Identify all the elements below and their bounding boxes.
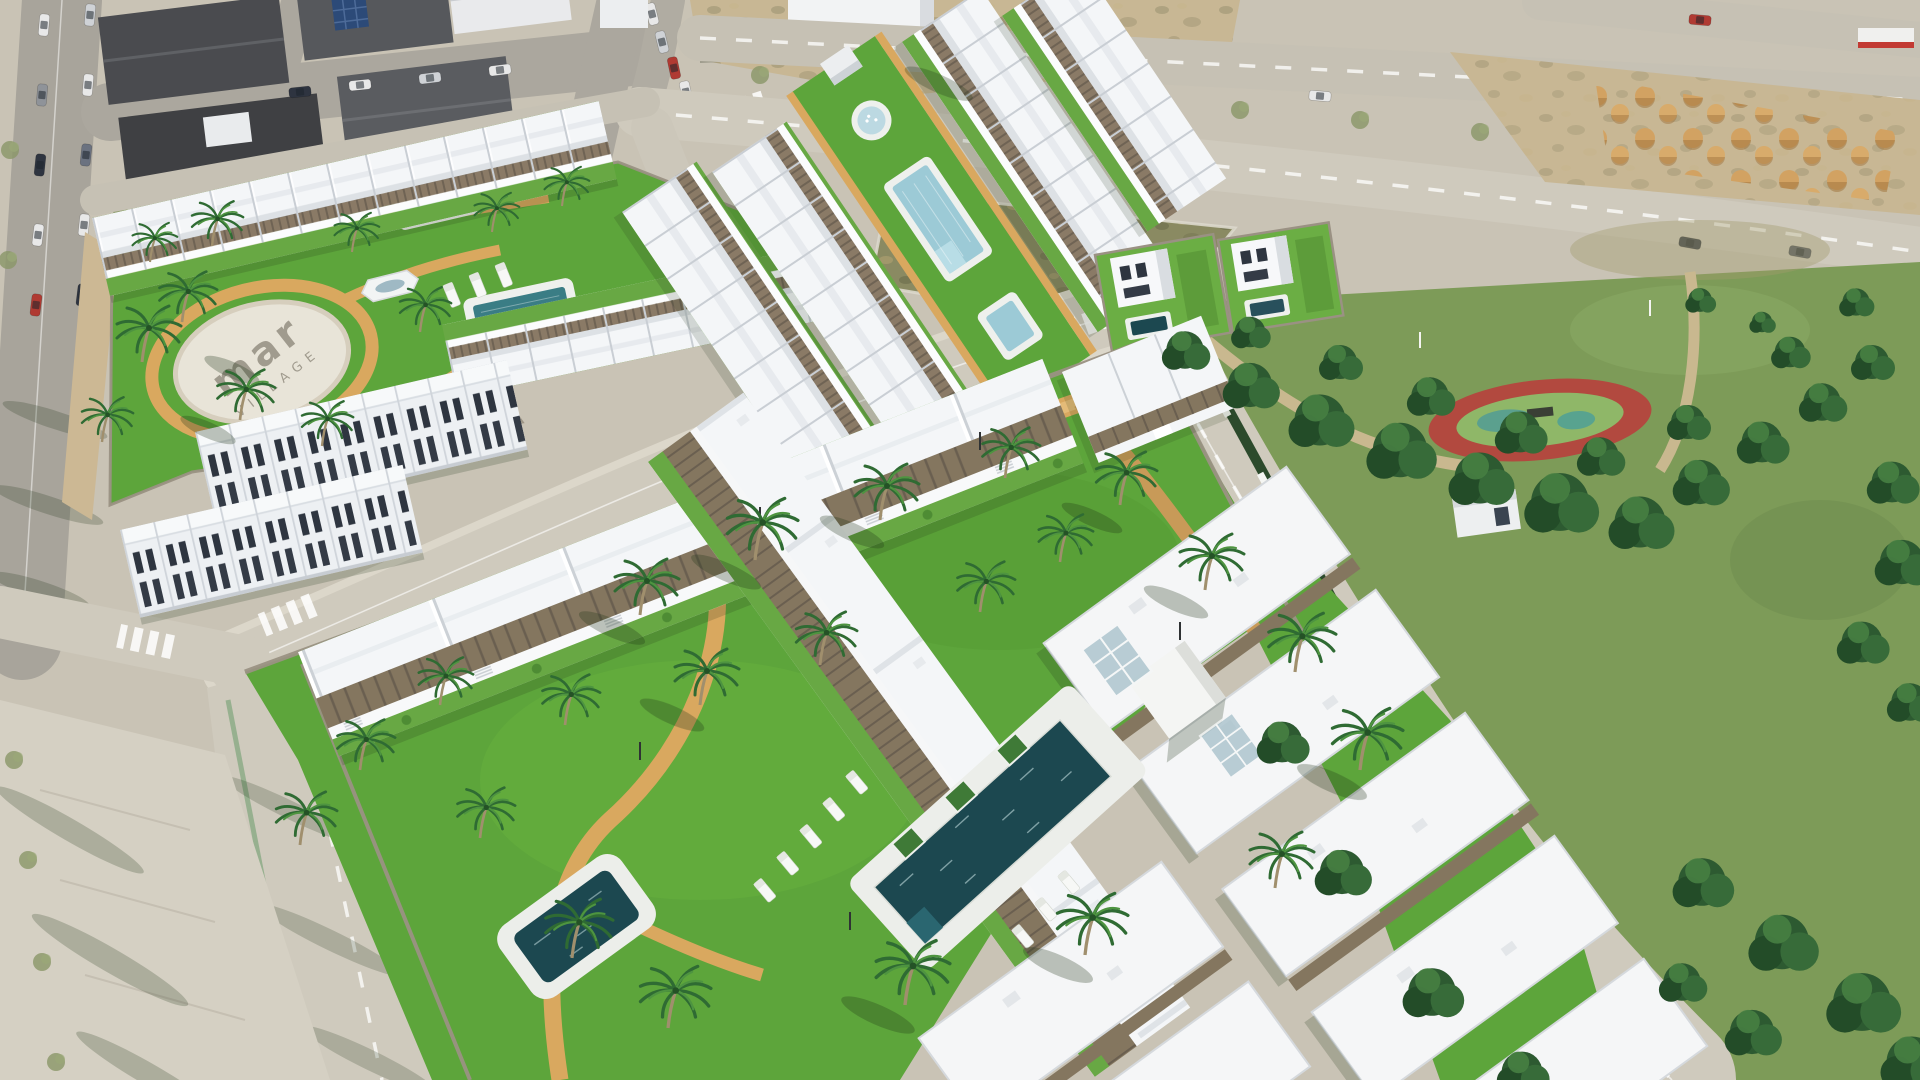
bare-tree bbox=[33, 953, 51, 971]
bare-tree bbox=[19, 851, 37, 869]
town-building bbox=[600, 0, 648, 28]
parked-car bbox=[289, 86, 312, 98]
red-car bbox=[1689, 14, 1712, 26]
parked-car bbox=[84, 4, 96, 27]
parked-car bbox=[34, 154, 46, 177]
aerial-render: Aerial 3D render of a new-build Mediterr… bbox=[0, 0, 1920, 1080]
parked-car bbox=[82, 74, 94, 97]
red-white-structure bbox=[1858, 28, 1914, 48]
parked-car bbox=[38, 14, 50, 37]
parked-car bbox=[78, 214, 90, 237]
street-tree bbox=[1, 141, 19, 159]
parked-car bbox=[80, 144, 92, 167]
bare-tree bbox=[5, 751, 23, 769]
bare-tree bbox=[47, 1053, 65, 1071]
parked-car bbox=[349, 79, 372, 91]
parked-car bbox=[36, 84, 48, 107]
car bbox=[1309, 90, 1332, 102]
aerial-render-stage: Aerial 3D render of a new-build Mediterr… bbox=[0, 0, 1920, 1080]
villa-2 bbox=[1218, 222, 1343, 332]
